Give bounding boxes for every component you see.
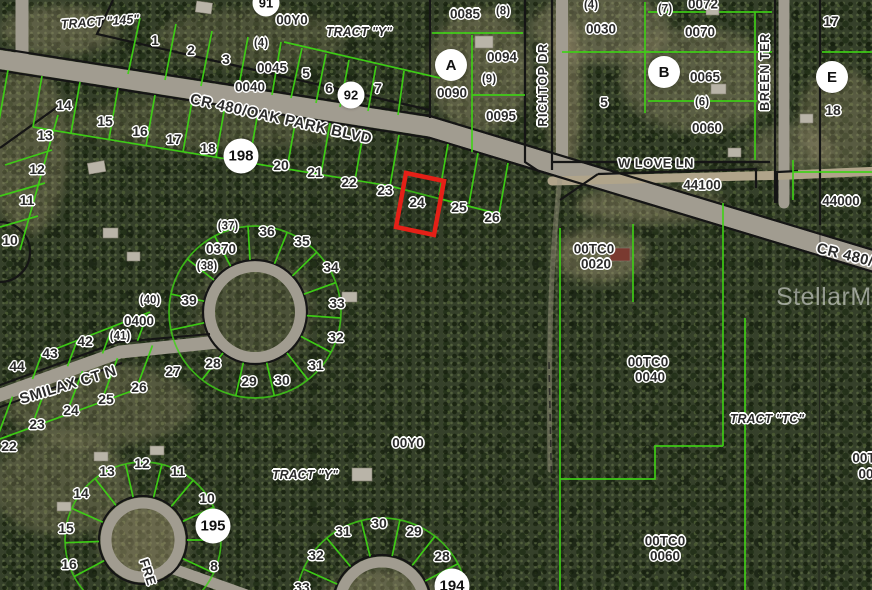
parcel-code-0060: 0060 xyxy=(650,549,680,563)
lot-label-33: 33 xyxy=(294,580,310,590)
tract-label-tract-tc: TRACT "TC" xyxy=(730,413,804,426)
lot-alt-label-7: (7) xyxy=(658,4,672,16)
lot-label-17: 17 xyxy=(166,132,182,146)
lot-label-36: 36 xyxy=(259,224,275,238)
parcel-code-0040: 0040 xyxy=(635,370,665,384)
lot-label-28: 28 xyxy=(205,356,221,370)
lot-label-7: 7 xyxy=(374,81,382,95)
map-labels-layer: 91TRACT "145"123(4)0045004000Y0TRACT "Y"… xyxy=(0,0,872,590)
parcel-code-0030: 0030 xyxy=(586,22,616,36)
lot-label-22: 22 xyxy=(341,175,357,189)
parcel-code-00y0: 00Y0 xyxy=(276,13,308,27)
parcel-code-00: 00 xyxy=(858,467,872,481)
parcel-code-00y0: 00Y0 xyxy=(392,436,424,450)
parcel-code-0400: 0400 xyxy=(124,314,154,328)
parcel-code-0370: 0370 xyxy=(206,242,236,256)
lot-alt-label-4: (4) xyxy=(254,38,268,50)
lot-label-29: 29 xyxy=(241,374,257,388)
lot-circle-badge-195: 195 xyxy=(196,509,231,544)
lot-label-23: 23 xyxy=(29,417,45,431)
lot-label-10: 10 xyxy=(2,233,18,247)
parcel-code-0060: 0060 xyxy=(692,121,722,135)
lot-label-5: 5 xyxy=(302,66,310,80)
lot-label-18: 18 xyxy=(825,103,841,117)
road-label-breen-ter: BREEN TER xyxy=(759,33,772,111)
lot-label-31: 31 xyxy=(335,524,351,538)
parcel-code-00tc0: 00TC0 xyxy=(574,242,615,256)
map-canvas[interactable]: 91TRACT "145"123(4)0045004000Y0TRACT "Y"… xyxy=(0,0,872,590)
lot-label-29: 29 xyxy=(406,524,422,538)
lot-label-13: 13 xyxy=(37,128,53,142)
lot-label-16: 16 xyxy=(61,557,77,571)
lot-label-8: 8 xyxy=(210,559,218,573)
lot-label-15: 15 xyxy=(58,521,74,535)
lot-label-43: 43 xyxy=(42,346,58,360)
lot-alt-label-40: (40) xyxy=(140,295,160,307)
lot-label-32: 32 xyxy=(328,330,344,344)
lot-label-14: 14 xyxy=(56,98,72,112)
lot-label-14: 14 xyxy=(73,486,89,500)
lot-label-11: 11 xyxy=(20,193,35,207)
parcel-code-0065: 0065 xyxy=(690,70,720,84)
lot-label-42: 42 xyxy=(77,334,93,348)
lot-alt-label-41: (41) xyxy=(110,331,130,343)
parcel-code-0095: 0095 xyxy=(486,109,516,123)
lot-label-12: 12 xyxy=(29,162,45,176)
road-label-w-love-ln: W LOVE LN xyxy=(618,157,694,170)
lot-label-28: 28 xyxy=(434,549,450,563)
parcel-code-00tc0: 00TC0 xyxy=(645,534,686,548)
lot-alt-label-8: (8) xyxy=(496,6,510,18)
lot-label-3: 3 xyxy=(222,52,230,66)
block-circle-badge-b: B xyxy=(648,56,680,88)
lot-label-25: 25 xyxy=(98,392,114,406)
parcel-code-0094: 0094 xyxy=(487,50,517,64)
parcel-code-44000: 44000 xyxy=(822,194,860,208)
tract-label-tract-y: TRACT "Y" xyxy=(326,26,392,39)
lot-label-25: 25 xyxy=(451,200,467,214)
lot-circle-badge-194: 194 xyxy=(435,569,470,590)
lot-label-23: 23 xyxy=(377,183,393,197)
lot-alt-label-37: (37) xyxy=(218,221,238,233)
watermark: StellarMLS xyxy=(776,283,872,312)
parcel-code-0040: 0040 xyxy=(235,80,265,94)
lot-alt-label-9: (9) xyxy=(482,74,496,86)
parcel-code-0085: 0085 xyxy=(450,7,480,21)
lot-label-34: 34 xyxy=(323,260,339,274)
lot-label-2: 2 xyxy=(187,43,195,57)
lot-label-6: 6 xyxy=(325,81,333,95)
parcel-code-0090: 0090 xyxy=(437,86,467,100)
lot-label-11: 11 xyxy=(171,464,186,478)
lot-label-32: 32 xyxy=(308,548,324,562)
lot-label-31: 31 xyxy=(308,358,324,372)
lot-label-30: 30 xyxy=(274,373,290,387)
parcel-code-0070: 0070 xyxy=(685,25,715,39)
road-label-fre: FRE xyxy=(138,557,159,587)
lot-label-21: 21 xyxy=(307,165,323,179)
lot-label-30: 30 xyxy=(371,516,387,530)
road-label-richtop-dr: RICHTOP DR xyxy=(537,43,550,126)
tract-label-tract-y: TRACT "Y" xyxy=(272,469,338,482)
lot-circle-badge-92: 92 xyxy=(338,82,365,109)
parcel-code-0020: 0020 xyxy=(581,257,611,271)
lot-label-24: 24 xyxy=(63,403,79,417)
lot-label-27: 27 xyxy=(165,364,181,378)
lot-alt-label-6: (6) xyxy=(695,97,709,109)
lot-label-44: 44 xyxy=(9,359,25,373)
parcel-code-0045: 0045 xyxy=(257,61,287,75)
tract-label-tract-145: TRACT "145" xyxy=(60,13,139,31)
road-label-cr-480: CR 480/ xyxy=(815,241,872,270)
lot-label-39: 39 xyxy=(181,293,197,307)
block-circle-badge-a: A xyxy=(435,49,467,81)
lot-label-18: 18 xyxy=(200,141,216,155)
lot-label-22: 22 xyxy=(1,439,17,453)
lot-label-26: 26 xyxy=(484,210,500,224)
parcel-code-00t: 00T xyxy=(852,451,872,465)
lot-label-12: 12 xyxy=(134,456,150,470)
lot-alt-label-38: (38) xyxy=(197,261,217,273)
lot-circle-badge-198: 198 xyxy=(224,139,259,174)
lot-label-10: 10 xyxy=(199,491,215,505)
parcel-code-00tc0: 00TC0 xyxy=(628,355,669,369)
lot-alt-label-4: (4) xyxy=(584,0,598,12)
parcel-code-0072: 0072 xyxy=(688,0,718,11)
block-circle-badge-e: E xyxy=(816,61,848,93)
lot-label-33: 33 xyxy=(329,296,345,310)
lot-label-5: 5 xyxy=(600,95,608,109)
lot-label-35: 35 xyxy=(294,234,310,248)
parcel-code-44100: 44100 xyxy=(683,178,721,192)
lot-label-16: 16 xyxy=(132,124,148,138)
lot-label-1: 1 xyxy=(151,33,159,47)
lot-label-17: 17 xyxy=(823,14,839,28)
lot-label-15: 15 xyxy=(97,114,113,128)
lot-label-13: 13 xyxy=(99,464,115,478)
lot-label-26: 26 xyxy=(131,380,147,394)
lot-label-20: 20 xyxy=(273,158,289,172)
lot-label-24: 24 xyxy=(409,195,425,209)
